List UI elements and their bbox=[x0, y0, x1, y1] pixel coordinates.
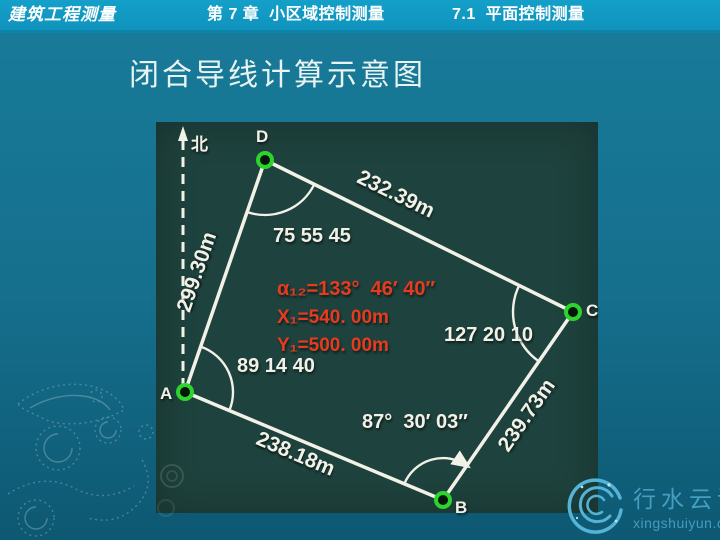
side-length-AB: 238.18m bbox=[253, 427, 338, 481]
azimuth-value: α₁₂=133° 46′ 40″ bbox=[277, 278, 435, 300]
watermark-site: xingshuiyun.com bbox=[633, 515, 720, 531]
course-title: 建筑工程测量 bbox=[8, 0, 116, 30]
watermark-logo-text: 行水云课 bbox=[633, 480, 720, 514]
point-label-B: B bbox=[455, 498, 467, 517]
angle-arc-D bbox=[247, 184, 314, 215]
angle-value-C: 127 20 10 bbox=[444, 324, 533, 346]
angle-value-A: 89 14 40 bbox=[237, 355, 315, 377]
side-length-DC: 232.39m bbox=[354, 166, 439, 223]
decorative-pattern bbox=[0, 372, 175, 540]
point-marker-C bbox=[566, 305, 580, 319]
y-coordinate-value: Y₁=500. 00m bbox=[277, 335, 389, 356]
point-label-D: D bbox=[256, 127, 268, 146]
point-label-A: A bbox=[160, 384, 172, 403]
slide-title: 闭合导线计算示意图 bbox=[129, 50, 426, 94]
header-bar: 建筑工程测量 第 7 章 小区域控制测量 7.1 平面控制测量 bbox=[0, 0, 720, 33]
traverse-diagram: 北 A B C D 299.30m 232.39m 238.18m bbox=[156, 122, 598, 513]
point-marker-B bbox=[436, 493, 450, 507]
angle-value-D: 75 55 45 bbox=[273, 225, 351, 247]
side-length-DA: 299.30m bbox=[172, 229, 221, 315]
point-label-C: C bbox=[586, 301, 598, 320]
presentation-slide: 建筑工程测量 第 7 章 小区域控制测量 7.1 平面控制测量 闭合导线计算示意… bbox=[0, 0, 720, 540]
north-label: 北 bbox=[191, 135, 208, 154]
angle-value-B: 87° 30′ 03″ bbox=[362, 411, 468, 433]
wave-logo-icon bbox=[564, 474, 626, 536]
north-arrow bbox=[178, 126, 188, 388]
chapter-title: 第 7 章 小区域控制测量 bbox=[207, 0, 385, 30]
watermark: 行水云课 xingshuiyun.com bbox=[564, 474, 720, 536]
x-coordinate-value: X₁=540. 00m bbox=[277, 307, 389, 328]
gear-watermark-icon bbox=[158, 465, 183, 516]
section-title: 7.1 平面控制测量 bbox=[452, 0, 585, 30]
traverse-line-AB bbox=[185, 392, 443, 500]
point-marker-A bbox=[178, 385, 192, 399]
point-marker-D bbox=[258, 153, 272, 167]
